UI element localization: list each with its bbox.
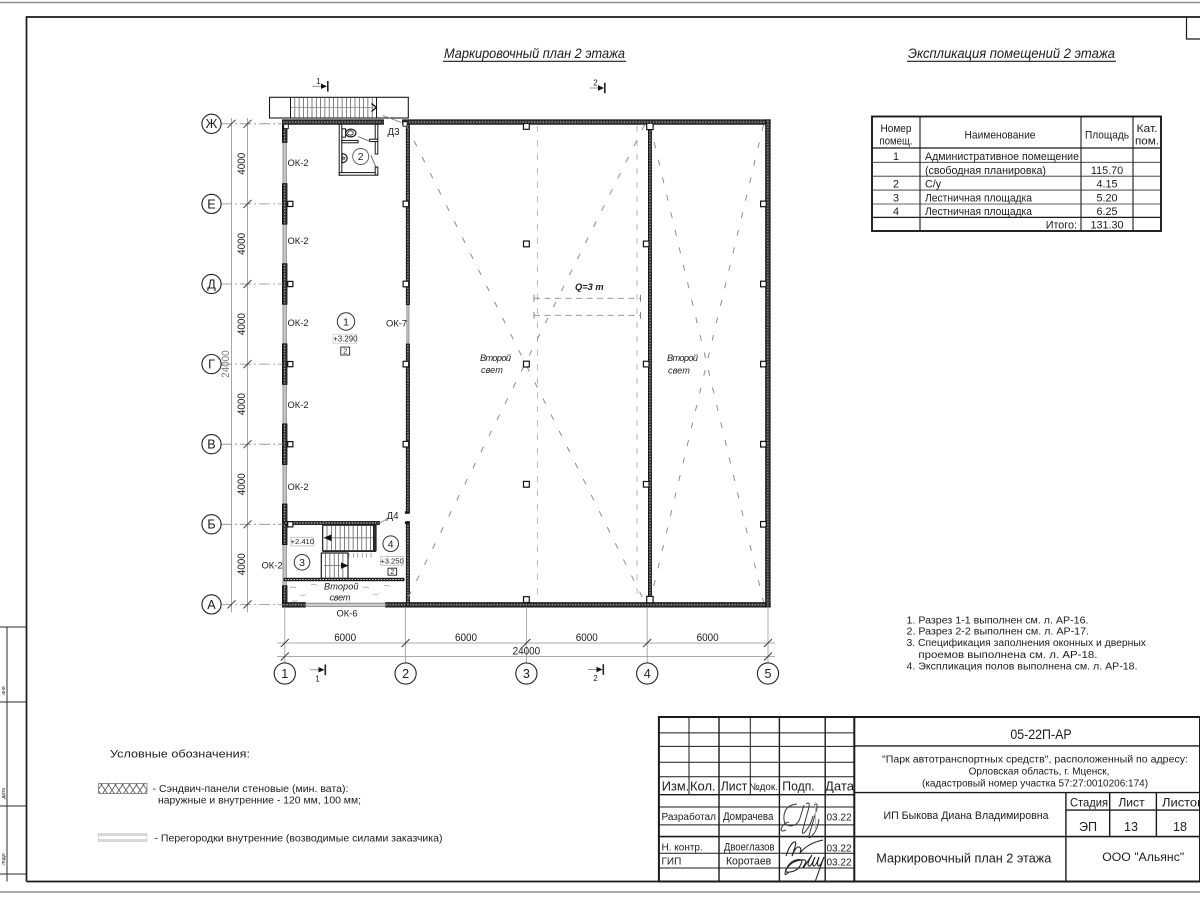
svg-text:4000: 4000	[236, 233, 248, 255]
svg-text:Г: Г	[208, 358, 215, 372]
svg-text:131.30: 131.30	[1090, 219, 1123, 231]
svg-text:Второй: Второй	[480, 353, 511, 363]
svg-text:Подп.: Подп.	[782, 779, 814, 794]
svg-text:ОК-2: ОК-2	[262, 560, 283, 571]
svg-text:6.25: 6.25	[1096, 206, 1117, 218]
svg-text:6000: 6000	[697, 632, 719, 644]
svg-text:ОК-2: ОК-2	[288, 235, 309, 246]
svg-text:3: 3	[893, 192, 899, 204]
svg-text:Е: Е	[207, 197, 215, 211]
svg-text:Условные обозначения:: Условные обозначения:	[110, 748, 250, 760]
svg-text:1: 1	[343, 318, 349, 329]
svg-text:.подл: .подл	[1, 853, 7, 866]
svg-text:Разработал: Разработал	[662, 811, 717, 823]
svg-text:+3.250: +3.250	[380, 556, 403, 565]
svg-text:(свободная планировка): (свободная планировка)	[925, 165, 1046, 177]
svg-text:Q=3 т: Q=3 т	[575, 282, 604, 292]
svg-text:наружные и внутренние - 120 мм: наружные и внутренние - 120 мм, 100 мм;	[158, 796, 361, 807]
svg-text:ОК-6: ОК-6	[337, 608, 358, 619]
svg-text:2: 2	[390, 569, 394, 576]
svg-text:4. Экспликация полов выполнена: 4. Экспликация полов выполнена см. л. АР…	[907, 661, 1138, 672]
svg-text:5: 5	[764, 667, 771, 681]
svg-text:ИП Быкова Диана Владимировна: ИП Быкова Диана Владимировна	[884, 810, 1049, 822]
svg-text:Дата: Дата	[825, 779, 855, 794]
svg-text:Б: Б	[207, 518, 215, 532]
svg-text:Кол.: Кол.	[690, 779, 716, 794]
svg-text:13: 13	[1124, 820, 1138, 834]
svg-text:.дата: .дата	[1, 788, 7, 800]
svg-text:Листов: Листов	[1162, 796, 1200, 810]
svg-text:ООО "Альянс": ООО "Альянс"	[1102, 850, 1184, 864]
svg-text:4: 4	[644, 667, 651, 681]
svg-text:Двоеглазов: Двоеглазов	[724, 842, 775, 854]
svg-text:С/у: С/у	[925, 179, 942, 191]
svg-text:1: 1	[316, 77, 321, 86]
svg-text:2: 2	[343, 347, 347, 356]
svg-text:Номер: Номер	[881, 123, 912, 135]
svg-text:ОК-2: ОК-2	[288, 481, 309, 492]
svg-text:115.70: 115.70	[1091, 165, 1123, 177]
svg-text:Лист: Лист	[721, 779, 748, 794]
svg-text:.инв: .инв	[1, 686, 7, 696]
svg-text:№док.: №док.	[749, 782, 778, 793]
svg-text:4000: 4000	[236, 393, 248, 415]
svg-text:4.15: 4.15	[1096, 179, 1117, 191]
svg-text:свет: свет	[481, 365, 503, 375]
svg-text:3: 3	[523, 667, 530, 681]
svg-text:(кадастровый номер участка 57:: (кадастровый номер участка 57:27:0010206…	[922, 779, 1148, 790]
svg-text:4: 4	[388, 540, 394, 551]
svg-text:- Перегородки внутренние (возв: - Перегородки внутренние (возводимые сил…	[155, 833, 443, 844]
svg-text:"Парк автотранспортных средств: "Парк автотранспортных средств", располо…	[882, 755, 1188, 766]
svg-text:Второй: Второй	[667, 353, 698, 363]
svg-text:Площадь: Площадь	[1085, 130, 1129, 142]
svg-text:ГИП: ГИП	[662, 857, 682, 868]
svg-text:Экспликация помещений 2 этажа: Экспликация помещений 2 этажа	[908, 46, 1115, 61]
svg-text:+3.290: +3.290	[333, 335, 358, 344]
svg-text:2: 2	[893, 179, 899, 191]
svg-text:помещ.: помещ.	[880, 136, 913, 148]
svg-text:Лестничная площадка: Лестничная площадка	[925, 206, 1032, 218]
svg-text:2: 2	[402, 667, 409, 681]
svg-text:Д4: Д4	[387, 511, 400, 522]
svg-text:1: 1	[893, 151, 899, 163]
svg-text:свет: свет	[668, 366, 690, 376]
svg-text:6000: 6000	[334, 632, 356, 644]
svg-text:Д: Д	[207, 277, 216, 291]
svg-text:Изм.: Изм.	[662, 779, 689, 794]
svg-text:4000: 4000	[236, 473, 248, 495]
svg-text:Лист: Лист	[1118, 796, 1145, 810]
svg-text:Кат.: Кат.	[1137, 123, 1158, 135]
svg-text:А: А	[207, 598, 216, 612]
svg-text:Н. контр.: Н. контр.	[662, 843, 703, 854]
svg-text:4: 4	[893, 206, 899, 218]
svg-text:1: 1	[281, 667, 288, 681]
svg-text:18: 18	[1173, 820, 1187, 834]
svg-text:1. Разрез 1-1 выполнен см. л.: 1. Разрез 1-1 выполнен см. л. АР-16.	[907, 615, 1089, 626]
svg-text:4000: 4000	[236, 553, 248, 575]
svg-text:ЭП: ЭП	[1079, 820, 1097, 834]
svg-text:ОК-2: ОК-2	[288, 399, 309, 410]
svg-text:24000: 24000	[220, 350, 232, 378]
svg-text:2. Разрез 2-2 выполнен см. л.: 2. Разрез 2-2 выполнен см. л. АР-17.	[907, 627, 1090, 638]
svg-text:24000: 24000	[513, 645, 541, 657]
svg-text:6000: 6000	[455, 632, 477, 644]
svg-text:В: В	[207, 438, 215, 452]
svg-text:Д3: Д3	[388, 127, 401, 138]
svg-text:+2.410: +2.410	[291, 537, 314, 546]
svg-text:4000: 4000	[236, 153, 248, 175]
svg-text:ОК-7: ОК-7	[386, 318, 407, 329]
svg-text:3: 3	[299, 558, 305, 569]
svg-text:Наименование: Наименование	[965, 130, 1036, 142]
svg-text:свет: свет	[330, 593, 351, 603]
svg-text:Маркировочный план 2 этажа: Маркировочный план 2 этажа	[444, 46, 625, 61]
svg-text:Орловская область, г. Мценск,: Орловская область, г. Мценск,	[969, 766, 1110, 778]
svg-text:5.20: 5.20	[1096, 192, 1117, 204]
svg-text:Второй: Второй	[324, 582, 359, 592]
svg-text:03.22: 03.22	[826, 857, 851, 868]
svg-text:3. Спецификация заполнения око: 3. Спецификация заполнения оконных и две…	[907, 638, 1147, 649]
svg-text:05-22П-АР: 05-22П-АР	[1010, 727, 1071, 742]
svg-text:1: 1	[315, 675, 320, 684]
svg-text:проемов выполнена см. л. АР-18: проемов выполнена см. л. АР-18.	[918, 650, 1097, 661]
svg-text:Административное помещение: Административное помещение	[925, 151, 1079, 163]
svg-text:2: 2	[593, 674, 598, 683]
svg-text:пом.: пом.	[1135, 136, 1159, 148]
svg-text:- Сэндвич-панели стеновые (мин: - Сэндвич-панели стеновые (мин. вата):	[153, 784, 349, 795]
svg-text:ОК-2: ОК-2	[288, 157, 309, 168]
svg-text:Домрачева: Домрачева	[723, 811, 774, 823]
svg-text:2: 2	[358, 152, 364, 163]
svg-text:4000: 4000	[236, 313, 248, 335]
svg-text:ОК-2: ОК-2	[288, 317, 309, 328]
svg-text:Стадия: Стадия	[1070, 796, 1108, 810]
svg-text:03.22: 03.22	[826, 813, 851, 824]
svg-text:6000: 6000	[576, 632, 598, 644]
svg-text:03.22: 03.22	[826, 843, 851, 854]
svg-text:Итого:: Итого:	[1046, 219, 1077, 231]
svg-text:Лестничная площадка: Лестничная площадка	[925, 192, 1032, 204]
svg-text:Ж: Ж	[206, 117, 218, 131]
svg-text:Коротаев: Коротаев	[726, 856, 772, 868]
svg-text:2: 2	[593, 79, 598, 88]
svg-text:Маркировочный план 2 этажа: Маркировочный план 2 этажа	[876, 851, 1052, 866]
